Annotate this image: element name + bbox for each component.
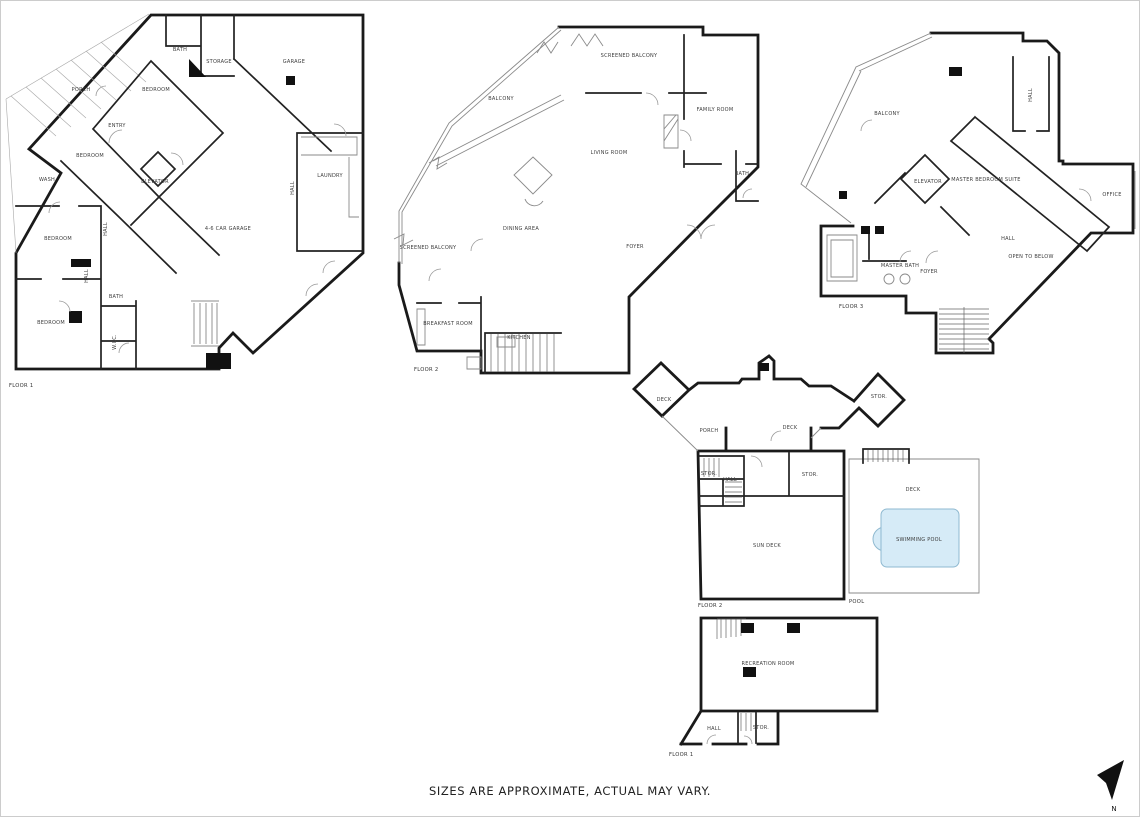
floor-1-plan: PORCH BATH STORAGE GARAGE BEDROOM ENTRY … [6,14,363,389]
floor2-door-arcs [429,93,752,281]
deck-outer-walls [634,356,904,599]
floor3-bath-fixtures [827,235,857,281]
room-label-balcony-f3: BALCONY [874,111,900,117]
floor-2-plan: SCREENED BALCONY BALCONY FAMILY ROOM LIV… [394,27,758,373]
room-label-foyer-f3: FOYER [920,269,938,275]
floor3-sink-2 [900,274,910,284]
room-label-recreation: RECREATION ROOM [742,661,795,667]
floor2-label: FLOOR 2 [414,367,439,373]
room-label-master-bath: MASTER BATH [881,263,919,269]
floorplan-sheet: PORCH BATH STORAGE GARAGE BEDROOM ENTRY … [0,0,1140,817]
room-label-hall1-f3: HALL [1028,88,1034,102]
room-label-stor-a: STOR. [701,471,717,477]
room-label-porch-deck: PORCH [700,428,719,434]
room-label-office: OFFICE [1102,192,1121,198]
floor1-label: FLOOR 1 [9,383,34,389]
floor3-open-shaft [951,117,1109,251]
floor3-label: FLOOR 3 [839,304,864,310]
lower-columns [741,623,800,677]
room-label-dining-area: DINING AREA [503,226,539,232]
room-label-living-room: LIVING ROOM [591,150,628,156]
floor3-balcony-railing [801,33,1135,229]
room-label-bedroom1: BEDROOM [142,87,170,93]
floor1-porch-boundary [6,14,149,253]
room-label-bedroom3: BEDROOM [44,236,72,242]
room-label-bath2: BATH [109,294,123,300]
floor2-window-walls [399,27,564,264]
room-label-elevator-f3: ELEVATOR [914,179,942,185]
room-label-stor-lower: STOR. [753,725,769,731]
floor2-fireplace-hatch [664,115,678,148]
floor3-stairs [939,307,989,353]
floor1-stairs [191,301,219,346]
room-label-pool-deck: DECK [906,487,921,493]
deck-level-label: FLOOR 2 [698,603,723,609]
room-label-bath-f2: BATH [735,171,749,177]
lower-level-plan: RECREATION ROOM HALL STOR. FLOOR 1 [669,618,877,758]
pool-area-plan: DECK SWIMMING POOL POOL [849,449,979,605]
room-label-deck-center: DECK [783,425,798,431]
room-label-bedroom2: BEDROOM [76,153,104,159]
room-label-bath1: BATH [173,47,187,53]
room-label-master-suite: MASTER BEDROOM SUITE [951,177,1020,183]
deck-level-plan: DECK PORCH DECK STOR. STOR. HALL STOR. S… [634,356,904,609]
deck-connectors [662,416,821,451]
room-label-bedroom4: BEDROOM [37,320,65,326]
room-label-laundry: LAUNDRY [317,173,343,179]
room-label-swimming-pool: SWIMMING POOL [896,537,942,543]
room-label-hall-lower: HALL [707,726,721,732]
room-label-hall1: HALL [290,181,296,195]
room-label-breakfast-room: BREAKFAST ROOM [423,321,473,327]
deck-wall-poche [759,363,769,371]
room-label-porch: PORCH [72,87,91,93]
floor3-outer-walls [821,33,1133,353]
room-label-stor-b: STOR. [802,472,818,478]
floor3-door-arcs [861,120,1091,263]
room-label-kitchen: KITCHEN [507,335,530,341]
disclaimer-text: SIZES ARE APPROXIMATE, ACTUAL MAY VARY. [1,784,1139,798]
floor2-kitchen-fixtures [417,309,515,369]
floor1-wall-poche [69,59,295,369]
room-label-stor-right: STOR. [871,394,887,400]
room-label-open-to-below: OPEN TO BELOW [1008,254,1053,260]
pool-stairs-border [863,449,909,463]
pool-stairs [868,450,903,462]
room-label-wash: WASH [39,177,55,183]
room-label-screened-balcony-top: SCREENED BALCONY [601,53,658,59]
room-label-elevator: ELEVATOR [141,179,169,185]
room-label-balcony: BALCONY [488,96,514,102]
room-label-entry: ENTRY [108,123,126,129]
room-label-hall2: HALL [103,222,109,236]
pool-area-label: POOL [849,599,864,605]
north-arrow-label: N [1111,805,1116,813]
room-label-hall2-f3: HALL [1001,236,1015,242]
floor2-skylight-diamond [514,157,552,206]
room-label-hall3: HALL [84,269,90,283]
room-label-sun-deck: SUN DECK [753,543,781,549]
lower-level-label: FLOOR 1 [669,752,694,758]
room-label-storage: STORAGE [206,59,232,65]
room-label-deck-left: DECK [657,397,672,403]
floor3-sink-1 [884,274,894,284]
floor2-break-symbols [394,34,603,245]
room-label-main-garage: 4-6 CAR GARAGE [205,226,251,232]
floor3-interior-walls [863,57,1049,261]
room-label-family-room: FAMILY ROOM [697,107,734,113]
room-label-screened-balcony-left: SCREENED BALCONY [400,245,457,251]
floor-3-plan: BALCONY HALL ELEVATOR MASTER BEDROOM SUI… [801,33,1135,353]
room-label-foyer-f2: FOYER [626,244,644,250]
floor1-door-arcs [49,86,346,353]
floorplan-canvas: PORCH BATH STORAGE GARAGE BEDROOM ENTRY … [1,1,1140,817]
room-label-hall-deck: HALL [723,477,737,483]
deck-interior-walls [700,453,844,506]
room-label-garage: GARAGE [283,59,305,65]
deck-door-arcs [751,431,781,467]
room-label-wic: W.I.C. [112,334,118,350]
